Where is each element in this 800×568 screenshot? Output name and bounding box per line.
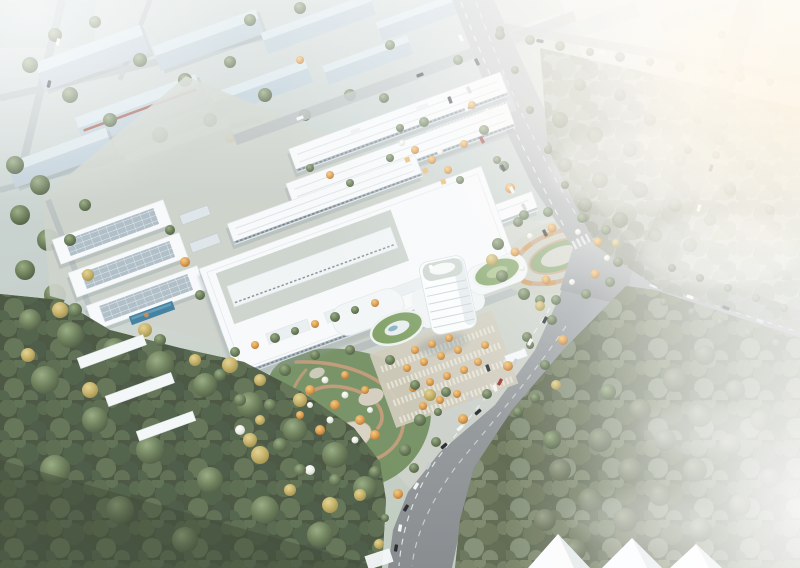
haze-overlay: [0, 0, 800, 568]
aerial-rendering: [0, 0, 800, 568]
scene-canvas: [0, 0, 800, 568]
